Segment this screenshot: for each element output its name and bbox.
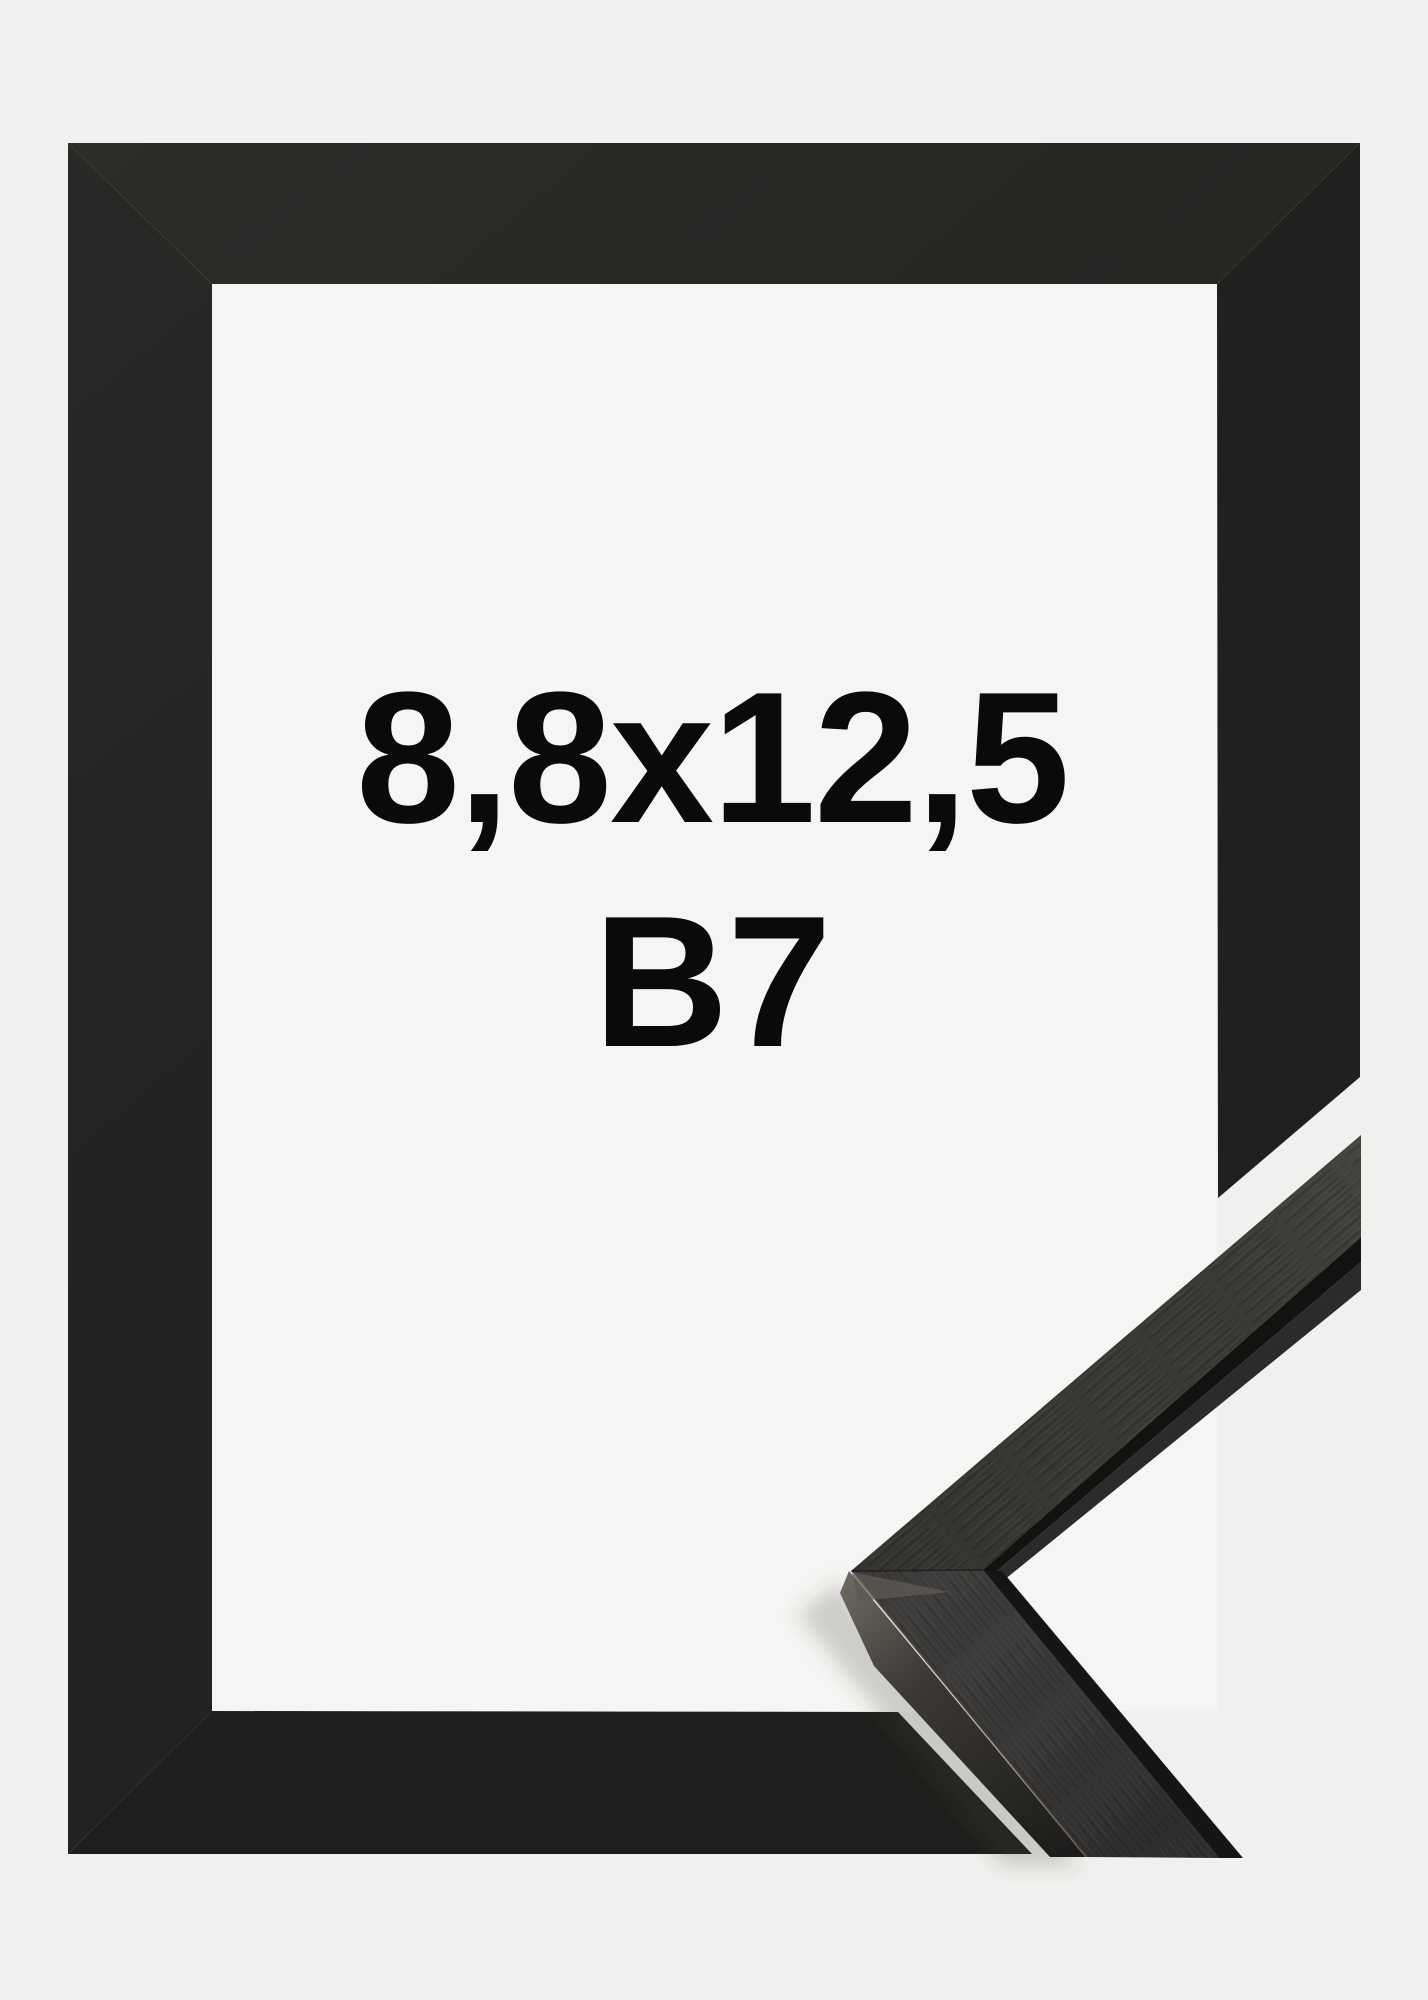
miter-seam-line <box>851 1570 983 1571</box>
size-label: 8,8x12,5 <box>356 653 1068 862</box>
frame-border-bottom <box>68 1711 1032 1854</box>
frame-product-image: 8,8x12,5 B7 <box>0 0 1428 2000</box>
frame-border-right <box>1217 143 1360 1198</box>
product-photo-stage: 8,8x12,5 B7 <box>0 0 1428 2000</box>
format-label: B7 <box>593 877 830 1086</box>
